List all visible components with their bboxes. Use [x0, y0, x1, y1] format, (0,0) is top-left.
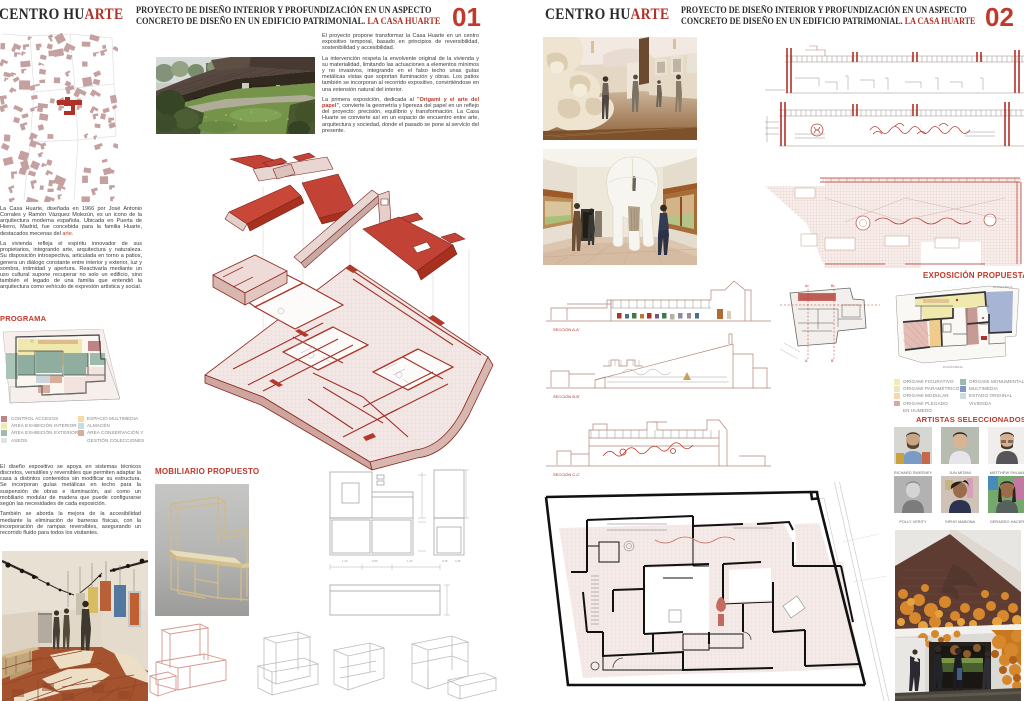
- svg-text:1.20: 1.20: [407, 559, 413, 563]
- svg-text:PLANTA BAJA: PLANTA BAJA: [993, 285, 1013, 289]
- svg-text:A': A': [805, 359, 808, 363]
- svg-text:PLANTA BAJA: PLANTA BAJA: [943, 365, 963, 369]
- svg-text:SECCIÓN C-C': SECCIÓN C-C': [553, 472, 580, 477]
- svg-text:B: B: [831, 284, 834, 288]
- svg-text:A: A: [805, 284, 808, 288]
- svg-text:1.20: 1.20: [342, 559, 348, 563]
- svg-text:0.45: 0.45: [442, 559, 448, 563]
- svg-text:0.45: 0.45: [455, 559, 461, 563]
- svg-text:0.80: 0.80: [372, 559, 378, 563]
- svg-text:SECCIÓN A-A': SECCIÓN A-A': [553, 327, 580, 332]
- svg-text:SECCIÓN B-B': SECCIÓN B-B': [553, 394, 580, 399]
- svg-text:B': B': [831, 359, 834, 363]
